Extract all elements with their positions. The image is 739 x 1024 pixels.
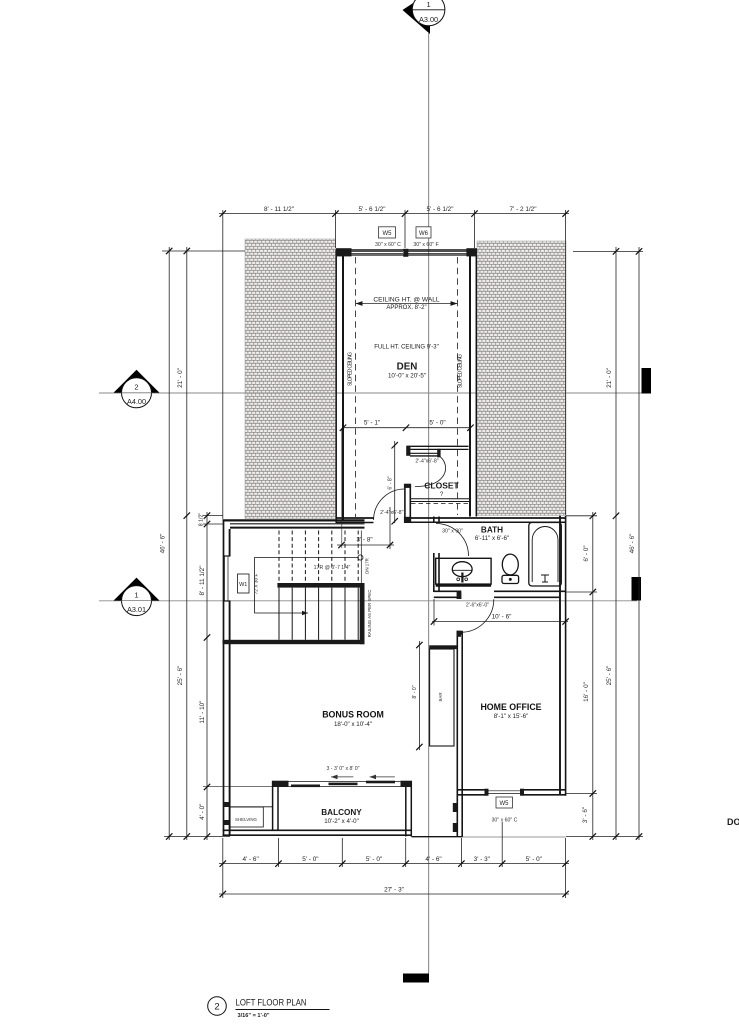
svg-text:APPROX. 8'-2": APPROX. 8'-2" <box>386 305 426 311</box>
svg-text:HOME OFFICE: HOME OFFICE <box>480 702 541 712</box>
svg-text:5' - 0": 5' - 0" <box>429 420 445 427</box>
svg-text:25' - 6": 25' - 6" <box>606 666 613 686</box>
svg-text:16' - 0": 16' - 0" <box>583 682 590 702</box>
svg-text:30" x 60" C: 30" x 60" C <box>492 818 518 824</box>
svg-text:21' - 0": 21' - 0" <box>606 368 613 388</box>
svg-text:10'-2" x 4'-0": 10'-2" x 4'-0" <box>324 818 359 825</box>
svg-text:5' - 1": 5' - 1" <box>364 420 380 427</box>
svg-text:DN 17R: DN 17R <box>365 558 370 574</box>
svg-text:W6: W6 <box>419 231 429 237</box>
svg-text:4' - 0": 4' - 0" <box>199 804 206 820</box>
svg-text:8' - 0": 8' - 0" <box>412 685 418 698</box>
svg-text:A4.00: A4.00 <box>127 397 146 406</box>
svg-text:27' - 3": 27' - 3" <box>384 887 404 894</box>
svg-text:5' - 0": 5' - 0" <box>366 856 382 863</box>
svg-text:8' - 11 1/2": 8' - 11 1/2" <box>264 206 294 213</box>
svg-text:5' - 0": 5' - 0" <box>526 856 542 863</box>
svg-text:2: 2 <box>214 1002 219 1013</box>
svg-text:FULL HT. CEILING 9'-3": FULL HT. CEILING 9'-3" <box>374 345 438 351</box>
svg-text:11' - 10": 11' - 10" <box>199 701 206 724</box>
svg-text:10' - 6": 10' - 6" <box>492 614 512 621</box>
svg-text:RAILING AS PER SPEC: RAILING AS PER SPEC <box>367 590 372 638</box>
svg-text:2'-4"x6'-8": 2'-4"x6'-8" <box>415 459 438 465</box>
svg-text:1: 1 <box>134 590 138 599</box>
svg-text:A3.01: A3.01 <box>127 605 146 614</box>
svg-text:5' - 6 1/2": 5' - 6 1/2" <box>427 206 454 213</box>
svg-text:8 1/2": 8 1/2" <box>199 513 205 527</box>
svg-text:BATH: BATH <box>481 526 503 535</box>
svg-text:3/16" = 1'-0": 3/16" = 1'-0" <box>238 1013 270 1019</box>
svg-text:3 - 3' 0" x 8' 0": 3 - 3' 0" x 8' 0" <box>326 766 359 772</box>
svg-text:6'-11" x 6'-6": 6'-11" x 6'-6" <box>475 535 509 542</box>
svg-text:2'-6"x6'-0": 2'-6"x6'-0" <box>466 603 489 609</box>
svg-text:8'-1" x 15'-6": 8'-1" x 15'-6" <box>494 713 529 720</box>
svg-text:BAR: BAR <box>438 692 443 701</box>
svg-text:30" x 60" C: 30" x 60" C <box>375 242 401 248</box>
svg-text:5' - 6 1/2": 5' - 6 1/2" <box>359 206 386 213</box>
svg-text:72 X 30 F: 72 X 30 F <box>254 574 260 595</box>
svg-text:8' - 11 1/2": 8' - 11 1/2" <box>199 565 206 595</box>
svg-text:2'-4"x6'-8": 2'-4"x6'-8" <box>380 510 403 516</box>
svg-text:SHELVING: SHELVING <box>235 817 257 822</box>
svg-text:A3.00: A3.00 <box>419 15 438 24</box>
svg-text:BONUS ROOM: BONUS ROOM <box>322 710 384 720</box>
svg-text:BALCONY: BALCONY <box>321 808 362 817</box>
svg-text:21' - 0": 21' - 0" <box>177 368 184 388</box>
svg-text:6' - 8": 6' - 8" <box>388 476 394 489</box>
svg-text:3' - 6": 3' - 6" <box>582 807 589 823</box>
svg-text:7' - 2 1/2": 7' - 2 1/2" <box>510 206 537 213</box>
svg-text:3' - 3": 3' - 3" <box>474 856 490 863</box>
svg-text:46' - 6": 46' - 6" <box>629 534 636 554</box>
svg-text:DO: DO <box>727 817 739 827</box>
svg-text:W1: W1 <box>239 582 247 588</box>
svg-text:4' - 6": 4' - 6" <box>242 856 258 863</box>
svg-text:W5: W5 <box>500 801 510 807</box>
svg-text:SLOPED CEILING: SLOPED CEILING <box>458 354 464 388</box>
svg-text:1: 1 <box>427 0 431 9</box>
svg-text:10'-0" x 20'-5": 10'-0" x 20'-5" <box>388 373 426 380</box>
svg-text:18'-0" x 10'-4": 18'-0" x 10'-4" <box>334 721 372 728</box>
svg-text:6' - 0": 6' - 0" <box>583 545 590 561</box>
svg-text:CLOSET: CLOSET <box>424 481 459 491</box>
svg-text:30" x 60" F: 30" x 60" F <box>413 242 438 248</box>
svg-text:DEN: DEN <box>397 362 418 373</box>
svg-text:30" x 90": 30" x 90" <box>442 529 463 535</box>
svg-text:W5: W5 <box>383 231 393 237</box>
svg-text:17R @ 0'-7 1/4": 17R @ 0'-7 1/4" <box>314 565 351 571</box>
svg-text:CEILING HT. @ WALL: CEILING HT. @ WALL <box>373 297 440 304</box>
svg-text:2: 2 <box>134 383 138 392</box>
svg-text:LOFT FLOOR PLAN: LOFT FLOOR PLAN <box>236 998 307 1008</box>
svg-text:3' - 8": 3' - 8" <box>356 537 372 544</box>
svg-text:25' - 6": 25' - 6" <box>177 666 184 686</box>
svg-text:5' - 0": 5' - 0" <box>302 856 318 863</box>
svg-text:46' - 6": 46' - 6" <box>160 534 167 554</box>
svg-text:4' - 6": 4' - 6" <box>425 856 441 863</box>
svg-text:SLOPED CEILING: SLOPED CEILING <box>348 352 354 386</box>
